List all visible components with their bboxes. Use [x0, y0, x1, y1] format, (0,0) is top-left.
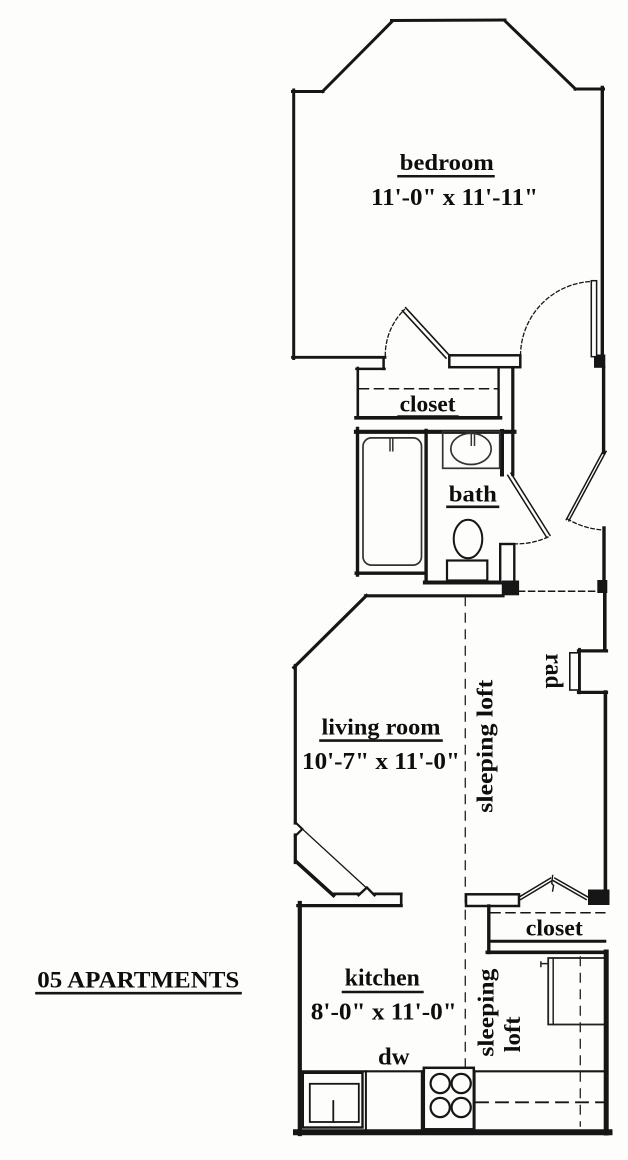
svg-text:dw: dw [378, 1044, 410, 1070]
svg-text:11'-0" x 11'-11": 11'-0" x 11'-11" [371, 185, 538, 211]
svg-text:8'-0" x 11'-0": 8'-0" x 11'-0" [311, 1000, 457, 1026]
svg-text:living room: living room [322, 714, 441, 740]
svg-text:closet: closet [526, 916, 583, 942]
svg-text:05 APARTMENTS: 05 APARTMENTS [37, 967, 239, 993]
svg-text:bedroom: bedroom [400, 150, 494, 176]
svg-text:loft: loft [500, 1016, 526, 1052]
svg-text:closet: closet [400, 392, 456, 418]
svg-text:sleeping: sleeping [474, 968, 500, 1056]
svg-text:10'-7" x 11'-0": 10'-7" x 11'-0" [302, 749, 460, 775]
svg-text:sleeping loft: sleeping loft [473, 680, 499, 813]
svg-text:kitchen: kitchen [345, 966, 420, 992]
svg-text:rad: rad [540, 654, 567, 689]
svg-text:bath: bath [449, 482, 497, 508]
